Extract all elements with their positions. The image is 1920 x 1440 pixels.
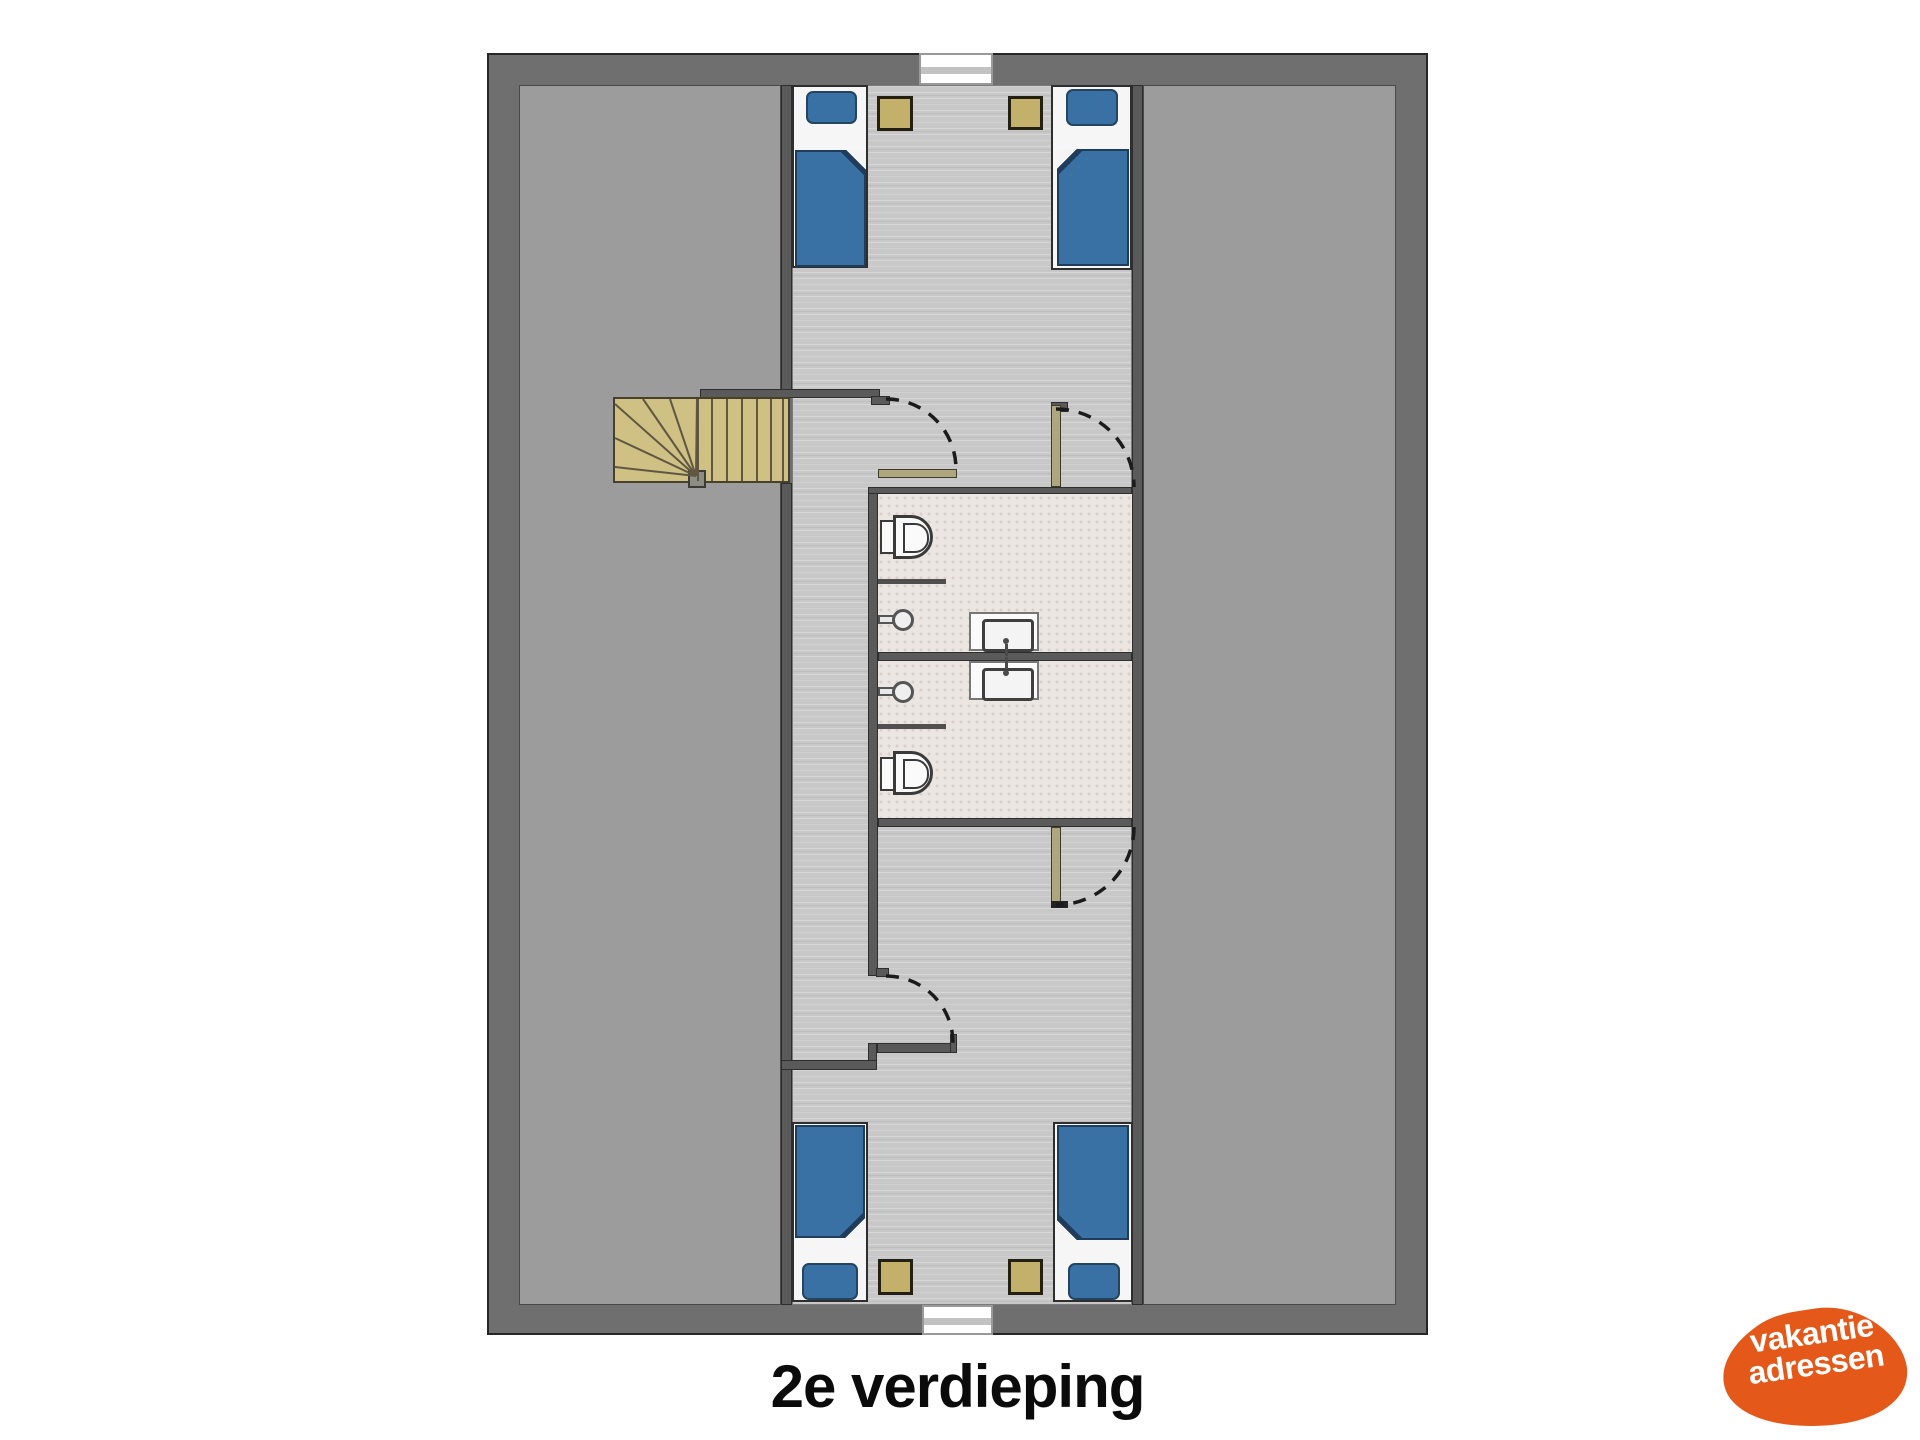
bed-pillow-top-right [1066,89,1118,126]
wall-corridor-left-lower [781,483,792,1305]
room-attic-left [519,85,781,1305]
toilet-bowl-inner [903,523,929,553]
door-leaf-bedroom-top [878,469,957,478]
blanket-fold [1057,149,1083,175]
wall-bedroom-bottom-top-b [781,1060,877,1070]
bed-pillow-bottom-right [1068,1263,1120,1300]
bed-blanket-bottom-right [1057,1125,1129,1240]
bed-blanket-bottom-left [795,1125,865,1238]
bed-blanket-top-right [1057,149,1129,266]
room-attic-right [1143,85,1396,1305]
vakantieadressen-logo: vakantie adressen [1718,1304,1910,1430]
door-leaf-bathroom-2 [1051,827,1061,907]
bed-pillow-bottom-left [802,1263,858,1300]
door-leaf-bathroom-1 [1051,405,1061,487]
window-frame-line [924,1318,991,1325]
wall-cap-bottom-door [950,1034,957,1053]
nightstand-bottom-right [1008,1259,1043,1295]
vanity-spout [1005,644,1008,656]
blanket-fold [839,1212,865,1238]
vanity-2 [969,661,1039,700]
floorplan-figure: 2e verdieping vakantie adressen [0,0,1920,1440]
wall-bathroom-bottom [878,818,1132,827]
vanity-spout [1005,657,1008,669]
wall-strip-right [1132,85,1143,1305]
wall-bathroom-top [868,487,1132,494]
door-tick [1051,901,1068,908]
window-frame-line [921,67,991,74]
sink-1-bowl [892,609,914,631]
stair-newel-post [688,470,706,488]
bed-blanket-top-left [795,150,866,267]
wall-foot-bathroom-left [876,968,889,977]
window-top [919,53,993,85]
nightstand-bottom-left [878,1259,913,1295]
floor-caption: 2e verdieping [487,1352,1428,1421]
sink-2-bowl [892,681,914,703]
bed-pillow-top-left [806,91,857,124]
nightstand-top-right [1008,96,1043,130]
toilet-bowl-inner [903,759,929,789]
wall-lip-top-door [871,396,890,405]
partition-bathroom-1 [878,579,946,584]
blanket-fold [1057,1214,1083,1240]
wall-bedroom-bottom-top-a [877,1043,957,1053]
wall-bathroom-left [868,487,878,976]
vanity-1 [969,612,1039,651]
vanity-basin [982,619,1034,652]
vanity-tap [1003,670,1009,676]
window-bottom [922,1305,993,1335]
blanket-fold [840,150,866,176]
wall-corridor-left-upper [781,85,792,398]
nightstand-top-left [877,96,913,131]
partition-bathroom-2 [878,724,946,729]
